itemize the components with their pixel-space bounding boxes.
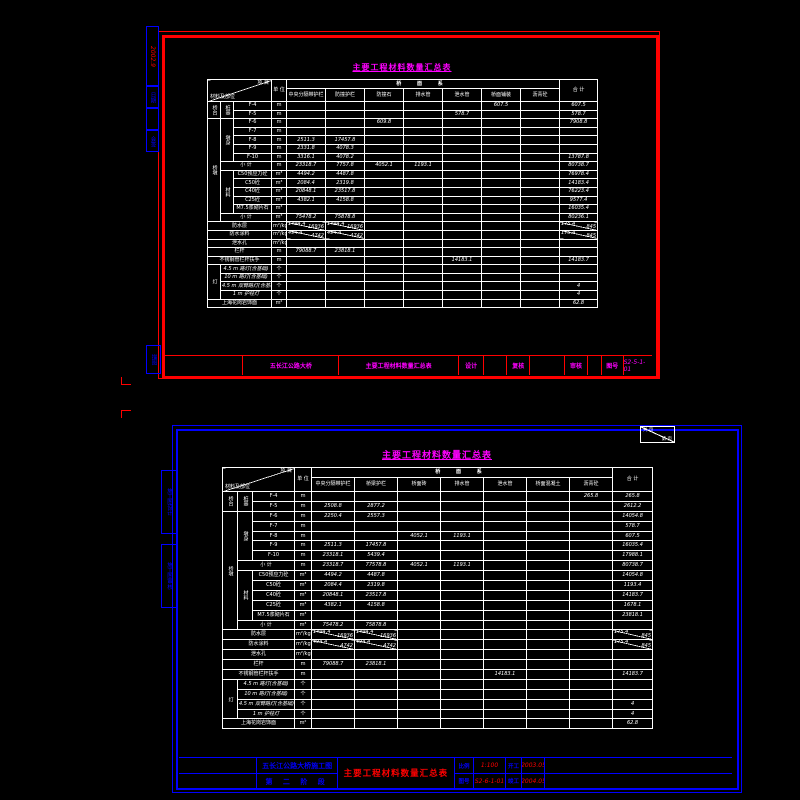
crop-mark-top bbox=[121, 377, 131, 385]
table-cell: m bbox=[295, 551, 312, 561]
table-cell bbox=[404, 256, 443, 265]
table-cell: 2877.2 bbox=[355, 501, 398, 511]
table-row: 灯4.5 m 路灯(含基础)个 bbox=[208, 265, 598, 274]
table-row: F-9m2511.317457.816035.4 bbox=[223, 541, 653, 551]
table-cell: 栏杆 bbox=[208, 248, 272, 257]
table-row: 不锈钢管栏杆扶手m14183.114183.7 bbox=[208, 256, 598, 265]
table-cell bbox=[355, 679, 398, 689]
table-row: F-10m23318.15439.417988.1 bbox=[223, 551, 653, 561]
table-cell bbox=[404, 119, 443, 128]
table-cell: 75878.8 bbox=[326, 213, 365, 222]
table-row: 4.5 m 双臂路灯(含基础)个4 bbox=[223, 699, 653, 709]
table-cell bbox=[521, 170, 560, 179]
table-cell: 3316.1 bbox=[287, 153, 326, 162]
table-cell bbox=[521, 144, 560, 153]
table-cell bbox=[570, 531, 613, 541]
table-cell bbox=[365, 127, 404, 136]
table-cell: 76978.4 bbox=[560, 170, 598, 179]
table-cell: 不锈钢管栏杆扶手 bbox=[223, 670, 295, 680]
table-cell bbox=[443, 179, 482, 188]
table-cell: 4 bbox=[560, 291, 598, 300]
table-row: M7.5浆砌片石m³16035.4 bbox=[208, 205, 598, 214]
table-row: 灯4.5 m 路灯(含基础)个 bbox=[223, 679, 653, 689]
table-cell bbox=[484, 521, 527, 531]
table-row: 材料C50预应力砼m³4494.24487.876978.4 bbox=[208, 170, 598, 179]
table-cell bbox=[443, 119, 482, 128]
table-cell bbox=[570, 709, 613, 719]
table-cell: 项 目材料及部位 bbox=[208, 80, 272, 102]
table-cell: 泄水管 bbox=[443, 89, 482, 102]
table-cell bbox=[527, 511, 570, 521]
table-cell: 2250.4 bbox=[312, 511, 355, 521]
table-cell: 个 bbox=[295, 679, 312, 689]
table-cell bbox=[326, 256, 365, 265]
table-cell bbox=[560, 239, 598, 248]
table-cell bbox=[398, 689, 441, 699]
table-cell bbox=[443, 102, 482, 111]
crop-mark-bottom bbox=[121, 410, 131, 418]
design-signature bbox=[483, 356, 506, 375]
table-cell: 16035.4 bbox=[560, 205, 598, 214]
table-cell bbox=[287, 205, 326, 214]
side-cell-countersign: 会签 bbox=[146, 130, 159, 152]
table-cell bbox=[484, 699, 527, 709]
table-cell: 14054.8 bbox=[613, 511, 653, 521]
table-cell: 中央分隔带护栏 bbox=[312, 478, 355, 492]
table-cell bbox=[312, 650, 355, 660]
total-pages-label: 共 页 bbox=[643, 427, 653, 433]
table-cell: 23318.7 bbox=[287, 162, 326, 171]
table-cell bbox=[482, 153, 521, 162]
table-cell bbox=[527, 590, 570, 600]
table-cell bbox=[521, 265, 560, 274]
table-cell bbox=[527, 610, 570, 620]
table-cell bbox=[441, 679, 484, 689]
blank-top bbox=[545, 758, 732, 774]
table-cell: F-7 bbox=[234, 127, 272, 136]
table-cell bbox=[570, 689, 613, 699]
blue-quantity-table: 项 目材料及部位单 位桥 面 系合 计中央分隔带护栏桥梁护栏桥面砖排水管泄水管桥… bbox=[222, 467, 653, 729]
table-row: C25砼m³4382.14158.81678.1 bbox=[223, 600, 653, 610]
table-cell bbox=[527, 521, 570, 531]
table-cell bbox=[312, 689, 355, 699]
table-cell: 9577.4 bbox=[560, 196, 598, 205]
table-cell: m²/kg bbox=[295, 650, 312, 660]
table-cell: 20848.1 bbox=[287, 187, 326, 196]
table-cell: 泄水孔 bbox=[223, 650, 295, 660]
table-cell bbox=[441, 670, 484, 680]
table-cell bbox=[287, 127, 326, 136]
stage-label: 第 二 阶 段 bbox=[257, 774, 336, 788]
table-cell bbox=[312, 670, 355, 680]
table-cell bbox=[527, 620, 570, 630]
table-cell bbox=[365, 153, 404, 162]
table-cell bbox=[560, 144, 598, 153]
table-cell bbox=[441, 650, 484, 660]
table-cell bbox=[404, 179, 443, 188]
table-cell: 607.5 bbox=[560, 102, 598, 111]
table-cell bbox=[570, 640, 613, 650]
table-cell bbox=[443, 162, 482, 171]
table-cell bbox=[443, 205, 482, 214]
table-cell: 桩基 bbox=[238, 492, 253, 512]
table-cell bbox=[355, 709, 398, 719]
check-signature bbox=[529, 356, 563, 375]
table-cell bbox=[613, 660, 653, 670]
table-cell bbox=[441, 541, 484, 551]
table-cell: 4494.2 bbox=[287, 170, 326, 179]
figure-number: S2-5-1-01 bbox=[623, 356, 652, 375]
table-cell bbox=[398, 551, 441, 561]
table-cell: 4158.8 bbox=[326, 196, 365, 205]
table-cell bbox=[443, 153, 482, 162]
table-cell bbox=[482, 187, 521, 196]
table-cell bbox=[312, 531, 355, 541]
table-cell: 桥台 bbox=[208, 102, 221, 119]
table-cell bbox=[570, 660, 613, 670]
table-cell: m bbox=[295, 561, 312, 571]
table-row: F-5m2508.82877.22612.2 bbox=[223, 501, 653, 511]
table-cell bbox=[527, 689, 570, 699]
table-cell bbox=[365, 248, 404, 257]
table-cell bbox=[484, 551, 527, 561]
table-cell bbox=[398, 511, 441, 521]
table-cell: 4.5 m 双臂路灯(含基础) bbox=[238, 699, 295, 709]
table-cell bbox=[443, 136, 482, 145]
table-cell: F-9 bbox=[253, 541, 295, 551]
table-cell: 79088.7 bbox=[287, 248, 326, 257]
table-cell: 80738.7 bbox=[560, 162, 598, 171]
review-label: 审核 bbox=[564, 356, 588, 375]
table-cell bbox=[521, 162, 560, 171]
table-cell bbox=[527, 670, 570, 680]
table-cell bbox=[398, 581, 441, 591]
table-cell bbox=[287, 299, 326, 308]
table-cell bbox=[398, 501, 441, 511]
table-cell: m²/kg bbox=[272, 222, 287, 231]
table-cell: m bbox=[272, 256, 287, 265]
table-cell bbox=[521, 222, 560, 231]
start-date-value: 2003.05 bbox=[521, 758, 544, 773]
table-cell: 175.4845 bbox=[560, 222, 598, 231]
table-cell bbox=[482, 127, 521, 136]
review-signature bbox=[587, 356, 601, 375]
table-cell bbox=[521, 196, 560, 205]
table-cell: m³ bbox=[272, 170, 287, 179]
table-cell bbox=[441, 660, 484, 670]
table-row: 防水涂料m²/kg494.44742494.44742175.4845 bbox=[208, 230, 598, 239]
table-cell: 1494.416936 bbox=[326, 222, 365, 231]
table-row: 上海花岗岩饰面m²62.8 bbox=[208, 299, 598, 308]
table-cell: 4.5 m 双臂路灯(含基础) bbox=[221, 282, 272, 291]
table-cell bbox=[484, 660, 527, 670]
table-cell: 桥 面 系 bbox=[312, 468, 613, 478]
table-cell: 个 bbox=[272, 273, 287, 282]
table-cell bbox=[404, 127, 443, 136]
table-cell bbox=[441, 630, 484, 640]
table-cell: 单 位 bbox=[272, 80, 287, 102]
blank-bottom bbox=[545, 774, 732, 788]
table-cell bbox=[326, 239, 365, 248]
table-cell bbox=[404, 205, 443, 214]
table-cell bbox=[355, 699, 398, 709]
table-cell bbox=[355, 719, 398, 729]
bridge-name: 五长江公路大桥 bbox=[242, 356, 338, 375]
check-label: 复核 bbox=[506, 356, 530, 375]
table-cell: 607.5 bbox=[482, 102, 521, 111]
table-cell bbox=[365, 273, 404, 282]
table-cell: m³ bbox=[295, 590, 312, 600]
page-number-label: 第 页 bbox=[662, 436, 672, 442]
table-cell: m bbox=[272, 110, 287, 119]
table-cell: 墩身 bbox=[221, 119, 234, 162]
table-cell bbox=[365, 222, 404, 231]
table-cell: F-9 bbox=[234, 144, 272, 153]
table-cell: 个 bbox=[272, 282, 287, 291]
table-cell bbox=[613, 620, 653, 630]
table-cell: F-7 bbox=[253, 521, 295, 531]
table-cell bbox=[398, 640, 441, 650]
table-cell: 7757.8 bbox=[326, 162, 365, 171]
table-cell bbox=[521, 282, 560, 291]
table-cell bbox=[521, 213, 560, 222]
table-cell bbox=[482, 282, 521, 291]
table-cell bbox=[326, 265, 365, 274]
table-cell: m bbox=[295, 541, 312, 551]
table-cell bbox=[527, 492, 570, 502]
table-row: 小 计m³75478.275878.880236.1 bbox=[208, 213, 598, 222]
table-row: C40砼m³20848.123517.876223.4 bbox=[208, 187, 598, 196]
red-sheet-side-strip: 2002.9 日期 会签 bbox=[146, 26, 159, 152]
table-cell bbox=[482, 119, 521, 128]
table-cell bbox=[398, 670, 441, 680]
table-cell: 14183.7 bbox=[613, 590, 653, 600]
table-cell: 4.5 m 路灯(含基础) bbox=[238, 679, 295, 689]
table-row: F-8m2511.317457.8 bbox=[208, 136, 598, 145]
table-cell bbox=[521, 127, 560, 136]
table-cell bbox=[570, 610, 613, 620]
table-cell: 14183.7 bbox=[560, 256, 598, 265]
table-cell: F-5 bbox=[253, 501, 295, 511]
table-cell bbox=[570, 581, 613, 591]
table-cell: 防水层 bbox=[208, 222, 272, 231]
table-row: 项 目材料及部位单 位桥 面 系合 计 bbox=[223, 468, 653, 478]
table-cell: 个 bbox=[295, 689, 312, 699]
table-cell bbox=[355, 650, 398, 660]
table-row: 防水层m²/kg1494.4169361494.416936175.4845 bbox=[223, 630, 653, 640]
end-date-value: 2004.05 bbox=[521, 773, 544, 788]
table-cell: F-8 bbox=[234, 136, 272, 145]
table-cell bbox=[404, 136, 443, 145]
table-cell: C40砼 bbox=[253, 590, 295, 600]
table-cell: 23818.1 bbox=[613, 610, 653, 620]
table-cell bbox=[443, 248, 482, 257]
table-cell bbox=[482, 213, 521, 222]
table-cell: m bbox=[295, 670, 312, 680]
table-cell bbox=[441, 719, 484, 729]
table-cell bbox=[404, 265, 443, 274]
table-cell bbox=[404, 170, 443, 179]
table-cell bbox=[287, 273, 326, 282]
table-cell: 14183.4 bbox=[560, 179, 598, 188]
blank-bottom bbox=[179, 774, 256, 788]
table-cell bbox=[527, 660, 570, 670]
table-cell: 灯 bbox=[223, 679, 238, 719]
table-cell bbox=[287, 239, 326, 248]
table-cell: F-4 bbox=[234, 102, 272, 111]
table-cell bbox=[441, 501, 484, 511]
table-cell bbox=[326, 282, 365, 291]
table-cell bbox=[326, 291, 365, 300]
table-row: F-7m bbox=[208, 127, 598, 136]
page-number-marker: 共 页 第 页 bbox=[640, 426, 675, 443]
table-cell bbox=[441, 709, 484, 719]
table-cell bbox=[484, 630, 527, 640]
table-cell bbox=[355, 531, 398, 541]
table-cell bbox=[312, 610, 355, 620]
table-cell: 1193.1 bbox=[441, 561, 484, 571]
table-cell: 4494.2 bbox=[312, 571, 355, 581]
red-title-block: 五长江公路大桥 主要工程材料数量汇总表 设计 复核 审核 图号 S2-5-1-0… bbox=[165, 355, 652, 375]
table-cell: 1193.1 bbox=[441, 531, 484, 541]
table-cell: m³ bbox=[272, 196, 287, 205]
table-row: F-7m578.7 bbox=[223, 521, 653, 531]
table-cell: 合 计 bbox=[560, 80, 598, 102]
table-cell: 1 m 护柱灯 bbox=[238, 709, 295, 719]
table-cell bbox=[404, 196, 443, 205]
table-cell bbox=[398, 630, 441, 640]
table-cell bbox=[312, 709, 355, 719]
table-cell bbox=[398, 650, 441, 660]
table-row: 10 m 路灯(含基础)个 bbox=[208, 273, 598, 282]
date-mark: 2002.9 bbox=[146, 26, 159, 86]
table-cell bbox=[527, 501, 570, 511]
table-cell: 265.8 bbox=[613, 492, 653, 502]
table-cell bbox=[326, 205, 365, 214]
table-cell: 80236.1 bbox=[560, 213, 598, 222]
table-cell: 4487.8 bbox=[355, 571, 398, 581]
table-cell bbox=[484, 689, 527, 699]
table-cell bbox=[365, 256, 404, 265]
title-block-blank bbox=[165, 356, 242, 375]
cad-canvas: 2002.9 日期 会签 描图 主要工程材料数量汇总表 项 目材料及部位单 位桥… bbox=[0, 0, 800, 800]
table-cell bbox=[482, 248, 521, 257]
table-row: F-10m3316.14078.213787.8 bbox=[208, 153, 598, 162]
table-cell bbox=[365, 196, 404, 205]
table-cell bbox=[570, 501, 613, 511]
table-cell bbox=[365, 136, 404, 145]
scale-figure-block: 比例 1:100 开工 2003.05 图号 S2-6-1-01 竣工 2004… bbox=[454, 758, 544, 788]
table-row: 小 计m23318.77757.84052.11193.180738.7 bbox=[208, 162, 598, 171]
table-cell: 沥青砼 bbox=[570, 478, 613, 492]
table-cell bbox=[398, 600, 441, 610]
table-row: 桥台桩基F-4m265.8265.8 bbox=[223, 492, 653, 502]
table-cell: M7.5浆砌片石 bbox=[234, 205, 272, 214]
table-cell: 不锈钢管栏杆扶手 bbox=[208, 256, 272, 265]
table-cell: 4382.1 bbox=[287, 196, 326, 205]
table-cell bbox=[441, 640, 484, 650]
table-cell bbox=[560, 127, 598, 136]
table-cell bbox=[365, 291, 404, 300]
table-cell bbox=[287, 282, 326, 291]
table-cell bbox=[482, 179, 521, 188]
table-cell: 桥面砖 bbox=[398, 478, 441, 492]
table-cell: 23818.1 bbox=[355, 660, 398, 670]
table-cell bbox=[482, 196, 521, 205]
table-cell bbox=[570, 561, 613, 571]
table-cell bbox=[404, 299, 443, 308]
table-cell: 17988.1 bbox=[613, 551, 653, 561]
table-cell: F-6 bbox=[234, 119, 272, 128]
table-cell: 4 bbox=[613, 699, 653, 709]
table-cell bbox=[365, 170, 404, 179]
table-cell: 609.8 bbox=[365, 119, 404, 128]
table-cell: m³ bbox=[272, 179, 287, 188]
table-cell: 23318.7 bbox=[312, 561, 355, 571]
table-cell: 4052.1 bbox=[365, 162, 404, 171]
table-cell: 75878.8 bbox=[355, 620, 398, 630]
table-cell bbox=[521, 136, 560, 145]
table-cell: 75478.2 bbox=[312, 620, 355, 630]
table-cell bbox=[287, 110, 326, 119]
table-row: C50砼m³2084.42319.81193.4 bbox=[223, 581, 653, 591]
table-cell bbox=[527, 679, 570, 689]
table-cell: 合 计 bbox=[613, 468, 653, 492]
table-cell bbox=[365, 299, 404, 308]
table-cell: 小 计 bbox=[221, 213, 272, 222]
table-cell: 墩身 bbox=[238, 511, 253, 560]
table-cell: 494.44742 bbox=[326, 230, 365, 239]
table-cell: 175.4845 bbox=[613, 630, 653, 640]
table-cell bbox=[365, 239, 404, 248]
table-cell: 17457.8 bbox=[355, 541, 398, 551]
table-cell bbox=[443, 230, 482, 239]
table-cell: m³ bbox=[295, 620, 312, 630]
sheet-name-block: 主要工程材料数量汇总表 bbox=[337, 758, 454, 788]
side-cell-date-label: 日期 bbox=[146, 86, 159, 108]
table-cell bbox=[560, 273, 598, 282]
table-cell bbox=[570, 670, 613, 680]
table-cell: 62.8 bbox=[560, 299, 598, 308]
table-cell: 个 bbox=[272, 265, 287, 274]
table-cell bbox=[398, 709, 441, 719]
table-cell: 2319.8 bbox=[355, 581, 398, 591]
table-cell bbox=[570, 511, 613, 521]
table-cell: 578.7 bbox=[443, 110, 482, 119]
table-cell: 4 bbox=[613, 709, 653, 719]
table-cell bbox=[482, 273, 521, 282]
table-cell bbox=[521, 248, 560, 257]
table-cell bbox=[521, 153, 560, 162]
table-cell bbox=[326, 127, 365, 136]
table-cell: m³ bbox=[272, 187, 287, 196]
table-cell bbox=[527, 571, 570, 581]
table-cell: 14183.7 bbox=[613, 670, 653, 680]
table-cell bbox=[398, 699, 441, 709]
table-cell bbox=[287, 119, 326, 128]
table-cell bbox=[441, 689, 484, 699]
table-cell: 16035.4 bbox=[613, 541, 653, 551]
table-cell: F-10 bbox=[234, 153, 272, 162]
table-cell: 1 m 护柱灯 bbox=[221, 291, 272, 300]
table-cell bbox=[312, 699, 355, 709]
table-cell: 材料 bbox=[238, 571, 253, 620]
table-cell bbox=[484, 492, 527, 502]
table-cell bbox=[527, 640, 570, 650]
table-cell: 个 bbox=[295, 699, 312, 709]
figure-number: S2-6-1-01 bbox=[473, 773, 505, 788]
table-cell: 578.7 bbox=[560, 110, 598, 119]
